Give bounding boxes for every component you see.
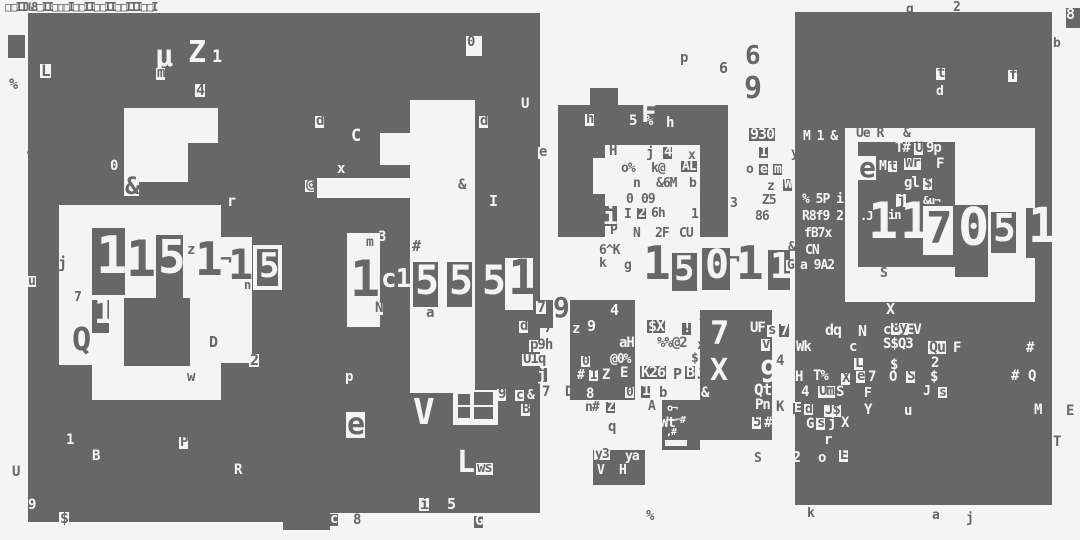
glyph: aH [619, 338, 634, 350]
glyph: 4 [801, 387, 808, 399]
glyph: 1 [195, 240, 222, 279]
glyph: ws [476, 463, 493, 475]
glyph: 6 [744, 45, 761, 67]
glyph: Z [602, 370, 609, 382]
glyph: U [521, 99, 528, 111]
glyph: 7 [926, 210, 952, 247]
glyph: p [680, 53, 687, 65]
dark-block [474, 392, 493, 405]
glyph: u [904, 406, 911, 418]
glyph: E [1066, 406, 1073, 418]
glyph: z [187, 245, 194, 257]
glyph: 9 [587, 320, 595, 333]
glyph: j [536, 368, 547, 382]
glyph: %%@2 [657, 338, 687, 350]
glyph: 7 [542, 387, 549, 399]
glyph: y3 [594, 449, 610, 460]
glyph: Qu [928, 341, 946, 354]
glyph: L [40, 64, 51, 78]
glyph: 4 [195, 84, 205, 97]
glyph: c [515, 390, 524, 401]
glyph: G [806, 419, 813, 431]
glyph: q [608, 422, 615, 434]
dark-block [8, 35, 25, 58]
glyph: i [419, 498, 429, 511]
glyph: 930 [749, 128, 775, 141]
glyph: & [527, 390, 534, 401]
glyph: 6^K [599, 245, 619, 256]
glyph: I [759, 147, 768, 158]
glyph: B [521, 404, 530, 416]
glyph: % [645, 116, 652, 128]
glyph: ! [682, 323, 691, 335]
light-block [330, 513, 540, 540]
glyph: 5 [993, 212, 1015, 244]
glyph: @ [555, 370, 562, 381]
glyph: a [426, 308, 433, 320]
glyph: @ [305, 180, 314, 192]
glyph: 1 [212, 50, 221, 64]
glyph: @0% [610, 354, 630, 365]
glyph: I [589, 370, 598, 381]
glyph: o¬ [667, 405, 677, 414]
glyph: $ [930, 372, 937, 384]
glyph: -⌐# [670, 417, 685, 426]
glyph: 4 [776, 356, 783, 368]
glyph: J [697, 368, 705, 381]
glyph: 9 [553, 296, 569, 320]
glitch-art-canvas: □□II№8□II□□□I□□II□□II□□III□□I %&LµZ1m40&… [0, 0, 1080, 540]
glyph: 2 [953, 2, 960, 13]
glyph: m [156, 68, 165, 80]
glyph: # [577, 370, 584, 381]
glyph: R8f9 2 [802, 211, 843, 222]
light-block [92, 365, 221, 400]
glyph: Z [606, 402, 615, 413]
glyph: M [879, 161, 886, 172]
glyph: k@ [651, 163, 665, 174]
dark-block [590, 88, 618, 113]
glyph: V [597, 465, 604, 476]
glyph: b [689, 178, 696, 189]
glyph: N [374, 303, 383, 315]
glyph: 6h [651, 208, 665, 219]
glyph: % [646, 511, 653, 523]
glyph: L [457, 450, 474, 476]
glyph: o% [621, 163, 635, 174]
glyph: X [710, 358, 727, 384]
glyph: e [346, 412, 365, 438]
glyph: fB7x [804, 228, 831, 239]
glyph: c [329, 514, 338, 526]
glyph: 2 [637, 208, 646, 219]
glyph: S$Q3 [883, 339, 913, 351]
glyph: t [936, 68, 945, 80]
glyph: 4 [610, 304, 618, 317]
glyph: X [886, 303, 894, 316]
dark-block [283, 505, 330, 530]
glyph: dq [825, 324, 841, 337]
glyph: 1 [900, 200, 929, 243]
glyph: Wr [904, 158, 921, 170]
glyph: 0 [626, 194, 633, 205]
glyph: $ [923, 178, 932, 190]
glyph: B [92, 451, 99, 463]
glyph: # [1011, 371, 1018, 383]
glyph: T [699, 320, 706, 332]
glyph: m [366, 237, 373, 248]
glyph: E [793, 403, 802, 414]
glyph: 9p [926, 143, 941, 155]
glyph: 1 [691, 209, 698, 220]
glyph: d [936, 86, 943, 97]
glyph: e [856, 371, 865, 383]
glyph: 3 [730, 198, 737, 209]
glyph: & [458, 180, 465, 192]
glyph: s [816, 418, 825, 430]
glyph: 9 [744, 76, 761, 102]
glyph: 5 [449, 264, 472, 298]
glyph: e [759, 164, 768, 175]
glyph: 1 [66, 435, 73, 447]
glyph: 0 [467, 37, 474, 49]
glyph: 1 [508, 258, 536, 299]
glyph: G [474, 516, 483, 528]
glyph: H [609, 146, 616, 158]
glyph: 5 [158, 238, 185, 277]
glyph: u [27, 276, 36, 287]
glyph: Y [864, 405, 871, 417]
glyph: Qt [754, 383, 771, 397]
light-block [380, 133, 412, 165]
glyph: S [754, 453, 761, 464]
glyph: h [585, 114, 594, 126]
glyph: Ue R [856, 128, 883, 139]
glyph: d [519, 321, 528, 333]
glyph: 1 [641, 386, 650, 398]
glyph: Q [1028, 371, 1035, 383]
glyph: &6M [656, 178, 676, 189]
glyph: j [646, 148, 653, 160]
glyph: o [745, 164, 754, 175]
glyph: 1 [643, 244, 670, 283]
glyph: P [179, 437, 188, 449]
glyph: H [795, 372, 802, 384]
glyph: gl [904, 178, 919, 190]
glyph: q [906, 4, 913, 15]
glyph: AL [681, 161, 697, 172]
glyph: 1 [126, 238, 155, 281]
glyph: A [648, 401, 655, 412]
glyph: v [761, 339, 770, 351]
glyph: S [906, 371, 915, 383]
light-block [317, 178, 412, 198]
glyph: #g [764, 418, 779, 430]
glyph: % [9, 78, 17, 91]
glyph: % 5P i [802, 194, 843, 205]
glyph: 1 [350, 258, 379, 301]
glyph: T [1053, 437, 1060, 449]
glyph: H [619, 465, 626, 476]
glyph: n [633, 178, 640, 189]
glyph: n# [585, 402, 599, 413]
glyph: d [804, 404, 813, 415]
glyph: Um [818, 386, 835, 398]
glyph: z [572, 324, 579, 336]
glyph: D [208, 336, 218, 349]
glyph: G [786, 260, 795, 271]
glyph: d [479, 116, 488, 128]
light-block [665, 440, 687, 446]
glyph: j [828, 418, 835, 430]
glyph: P [673, 368, 681, 381]
glyph: $X [647, 320, 665, 333]
glyph: 09 [641, 194, 655, 205]
glyph: m [773, 164, 782, 175]
glyph: c [849, 342, 856, 354]
glyph: N [633, 228, 640, 239]
glyph: n [243, 280, 251, 290]
header-glyph-strip: □□II№8□II□□□I□□II□□II□□III□□I [5, 1, 157, 13]
glyph: 7 [868, 372, 875, 384]
glyph: I [489, 195, 497, 208]
glyph: N [858, 325, 866, 338]
dark-block [474, 407, 493, 419]
glyph: C [351, 129, 360, 143]
glyph: & [124, 176, 139, 196]
glyph: T% [813, 371, 828, 383]
glyph: 7 [710, 320, 728, 347]
glyph: UF [750, 323, 765, 335]
glyph: 0 [625, 387, 634, 398]
glyph: V [413, 398, 434, 429]
glyph: j [58, 257, 66, 270]
glyph: $ [59, 512, 69, 525]
glyph: T# [895, 143, 910, 155]
glyph: D [565, 387, 572, 399]
dark-block [124, 298, 190, 366]
glyph: 6 [718, 62, 728, 75]
glyph: 2 [249, 354, 259, 367]
glyph: k [807, 508, 814, 519]
glyph: 5 [415, 264, 438, 298]
glyph: P [610, 225, 617, 236]
glyph: & [700, 388, 709, 400]
glyph: Wk [795, 342, 812, 354]
glyph: F [864, 388, 871, 399]
glyph: 5 [674, 255, 693, 284]
dark-block [458, 394, 470, 405]
glyph: 5 [447, 498, 455, 511]
light-block [124, 108, 218, 143]
glyph: r [824, 435, 831, 447]
glyph: 9 [497, 389, 506, 401]
glyph: S [880, 268, 887, 279]
glyph: 0 [958, 206, 988, 250]
glyph: f [1008, 70, 1017, 82]
glyph: X [841, 418, 848, 430]
glyph: E [619, 368, 628, 380]
glyph: & [27, 145, 35, 158]
glyph: 9 [28, 500, 35, 512]
glyph: 1 [868, 200, 897, 243]
glyph: 1 [1028, 206, 1056, 247]
glyph: r [227, 195, 235, 208]
glyph: $ [691, 353, 698, 364]
glyph: O [889, 372, 896, 384]
glyph: Pn [755, 400, 770, 412]
glyph: 86 [755, 211, 769, 222]
glyph: ya [624, 451, 640, 462]
glyph: 5 [752, 417, 761, 429]
glyph: Z [188, 40, 205, 66]
glyph: K [776, 402, 783, 414]
glyph: 1 [94, 298, 113, 327]
glyph: Q [72, 326, 90, 353]
glyph: U [914, 143, 923, 155]
glyph: B [685, 366, 695, 379]
glyph: 5 [629, 116, 636, 128]
glyph: 7 [544, 323, 551, 335]
glyph: I [624, 209, 631, 220]
glyph: 7 [779, 324, 789, 337]
glyph: e [858, 156, 876, 180]
glyph: 5 [259, 252, 278, 281]
glyph: ,# [666, 429, 676, 438]
glyph: 42 [784, 451, 800, 464]
glyph: 7 [536, 301, 546, 314]
glyph: x [697, 340, 704, 351]
glyph: E [839, 450, 848, 462]
glyph: 0 [705, 248, 728, 282]
glyph: 7 [74, 292, 81, 303]
glyph: # [412, 240, 420, 253]
glyph: F [936, 159, 943, 171]
glyph: & [788, 242, 795, 253]
glyph: y [791, 148, 798, 159]
glyph: # [1026, 343, 1033, 355]
glyph: CU [679, 228, 693, 239]
glyph: & [903, 128, 910, 139]
glyph: e [538, 147, 547, 159]
glyph: t [888, 161, 897, 172]
glyph: U [11, 467, 20, 479]
glyph: J [923, 386, 930, 397]
glyph: x [337, 164, 344, 176]
glyph: z [767, 181, 774, 192]
glyph: 1 [736, 244, 763, 283]
glyph: Z5 [762, 195, 776, 206]
light-block [593, 158, 607, 194]
glyph: 1 [96, 234, 126, 278]
glyph: 0 [581, 356, 590, 367]
glyph: a [695, 422, 702, 433]
glyph: p [345, 372, 352, 384]
glyph: a 9A2 [800, 260, 834, 271]
glyph: F [953, 343, 960, 355]
glyph: R [234, 465, 241, 477]
glyph: w [187, 372, 194, 384]
glyph: d [315, 116, 324, 128]
glyph: s [938, 387, 947, 398]
glyph: M [1034, 405, 1041, 417]
glyph: 5 [482, 264, 505, 298]
glyph: o [818, 453, 825, 465]
glyph: j [966, 513, 973, 524]
glyph: S [836, 387, 843, 399]
glyph: b [659, 388, 666, 400]
glyph: 0 [110, 161, 117, 173]
glyph: M 1 & [803, 131, 837, 142]
glyph: b [1053, 38, 1060, 49]
glyph: a [931, 510, 940, 521]
glyph: 8 [1066, 8, 1074, 21]
glyph: 4 [663, 147, 672, 159]
glyph: g [624, 260, 631, 271]
glyph: CN [805, 245, 819, 256]
glyph: k [599, 258, 606, 269]
glyph: 3 [378, 232, 385, 244]
glyph: c1 [381, 268, 410, 290]
dark-block [458, 407, 470, 418]
glyph: W [783, 179, 792, 191]
glyph: K26 [640, 366, 666, 379]
glyph: h [666, 118, 673, 130]
glyph: 8 [353, 515, 360, 527]
